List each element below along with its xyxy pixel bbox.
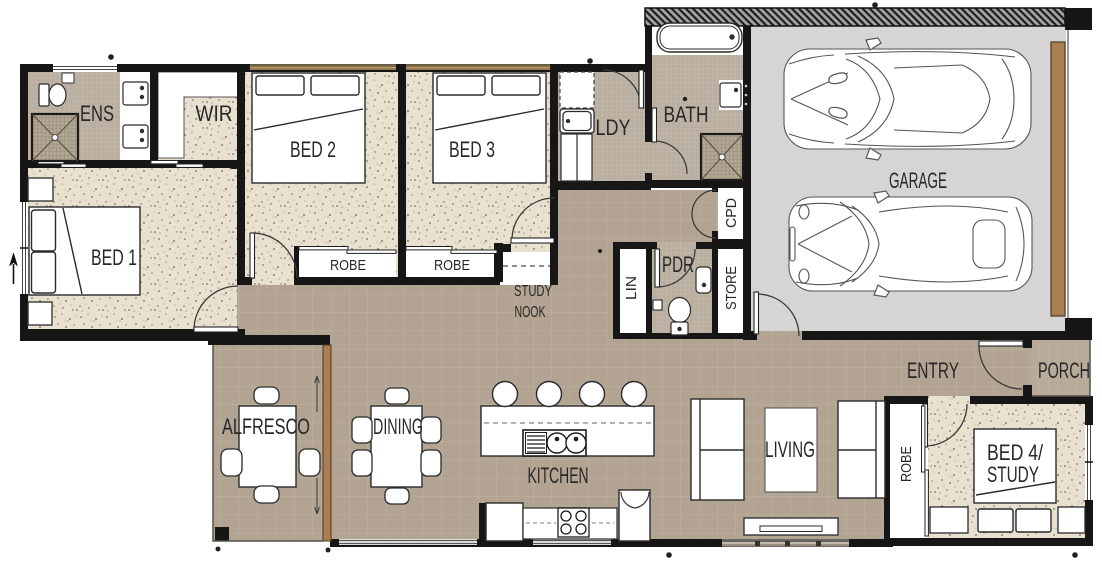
- svg-text:BATH: BATH: [664, 102, 709, 127]
- svg-text:STORE: STORE: [723, 266, 740, 310]
- svg-text:ROBE: ROBE: [898, 446, 915, 482]
- svg-text:LDY: LDY: [596, 115, 631, 140]
- svg-text:BED 3: BED 3: [449, 137, 495, 162]
- svg-text:GARAGE: GARAGE: [889, 168, 947, 193]
- svg-text:PDR: PDR: [662, 252, 694, 277]
- svg-text:NOOK: NOOK: [515, 304, 546, 321]
- svg-text:PORCH: PORCH: [1038, 358, 1090, 383]
- svg-text:STUDY: STUDY: [514, 283, 552, 300]
- svg-text:KITCHEN: KITCHEN: [528, 463, 589, 488]
- svg-text:LIN: LIN: [623, 276, 640, 300]
- svg-text:WIR: WIR: [196, 101, 233, 126]
- svg-text:DINING: DINING: [373, 414, 423, 439]
- svg-text:ENS: ENS: [80, 101, 114, 126]
- svg-text:ROBE: ROBE: [434, 257, 470, 274]
- svg-text:LIVING: LIVING: [765, 437, 815, 462]
- svg-text:BED 1: BED 1: [91, 245, 137, 270]
- svg-text:STUDY: STUDY: [987, 462, 1039, 487]
- svg-text:ROBE: ROBE: [330, 257, 366, 274]
- svg-text:CPD: CPD: [723, 198, 740, 228]
- svg-text:ALFRESCO: ALFRESCO: [222, 414, 310, 439]
- svg-text:BED 2: BED 2: [290, 137, 336, 162]
- svg-text:ENTRY: ENTRY: [907, 358, 959, 383]
